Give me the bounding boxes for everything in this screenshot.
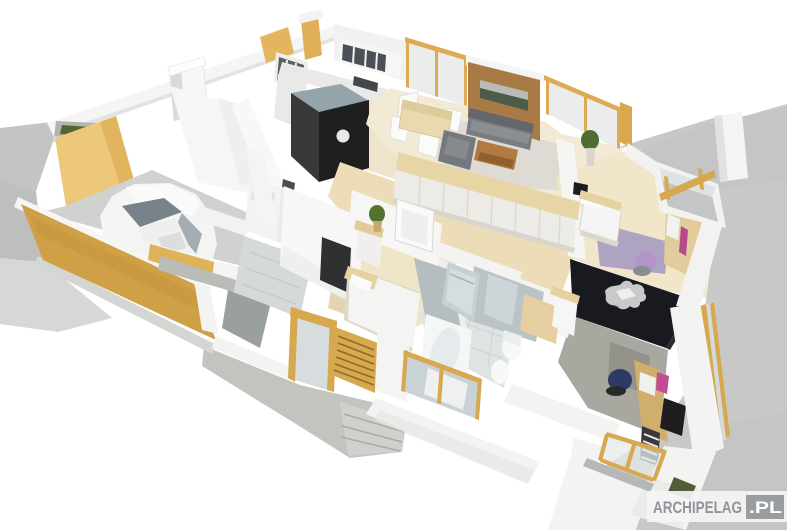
svg-text:.PL: .PL (749, 498, 782, 517)
svg-text:ARCHIPELAG: ARCHIPELAG (653, 498, 742, 517)
